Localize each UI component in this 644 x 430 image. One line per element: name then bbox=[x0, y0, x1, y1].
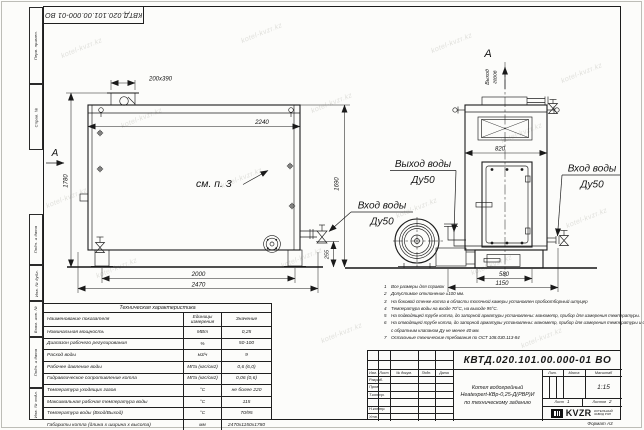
note-text: Остальные технические требования по ОСТ … bbox=[391, 334, 620, 341]
tech-characteristics-table: Техническая характеристика Наименование … bbox=[43, 303, 272, 420]
sheets-value: 2 bbox=[609, 399, 612, 404]
wall-fitting-icon bbox=[97, 130, 295, 209]
note-item: с обратным клапаном Ду не менее 40 мм. bbox=[384, 327, 620, 334]
tech-row: Температура воды (Вход/Выход)°С70/95 bbox=[44, 408, 271, 420]
product-name-cell: Котел водогрейный Heatexpert-КВр-0,25-Д(… bbox=[454, 370, 541, 420]
note-number: 4 bbox=[384, 305, 391, 312]
tech-cell-value: 9 bbox=[222, 350, 271, 361]
tech-header-unit: Единицы измерения bbox=[184, 313, 222, 326]
corner-lug-icon bbox=[453, 107, 559, 114]
tech-cell-value: 0,06 (0,6) bbox=[222, 374, 271, 385]
technical-notes: 1Все размеры для справок 2Допустимое отк… bbox=[384, 283, 620, 341]
note-number: 1 bbox=[384, 283, 391, 290]
view-a-arrow: А bbox=[46, 148, 64, 163]
water-in-text: Вход воды bbox=[358, 201, 407, 212]
sheet-value: 1 bbox=[567, 399, 570, 404]
note-text: Все размеры для справок bbox=[391, 283, 620, 290]
tech-row: Температура уходящих газов°Сне более 220 bbox=[44, 385, 271, 397]
note-text: с обратным клапаном Ду не менее 40 мм. bbox=[391, 327, 620, 334]
role-tkontr: Т.контр. bbox=[369, 392, 389, 397]
water-in-dn: Ду50 bbox=[579, 180, 604, 191]
tech-cell-value: не более 220 bbox=[222, 385, 271, 396]
scale-value-text: 1:15 bbox=[597, 384, 610, 391]
logo-bar bbox=[559, 411, 560, 416]
boiler-body-front bbox=[465, 105, 547, 250]
tech-cell-name: Температура воды (Вход/Выход) bbox=[44, 408, 184, 419]
note-item: 6На отводящей трубе котла, до запорной а… bbox=[384, 319, 620, 326]
flue-outlet-callout: Выход газов bbox=[485, 67, 505, 89]
tech-row: Рабочее давление водыМПа (кгс/см2)0,6 (6… bbox=[44, 362, 271, 374]
col-label: Дата bbox=[439, 371, 448, 375]
mass-label: Масса bbox=[563, 369, 585, 376]
cell-label: Масштаб bbox=[595, 371, 612, 375]
boiler-front-view: А Выход газов bbox=[329, 48, 620, 292]
divider-line bbox=[368, 360, 453, 361]
col-list: Лист bbox=[378, 369, 390, 376]
col-label: Изм. bbox=[369, 371, 377, 375]
tech-cell-unit: % bbox=[184, 339, 222, 350]
divider-line bbox=[556, 376, 557, 398]
tech-cell-name: Расход воды bbox=[44, 350, 184, 361]
dim-front-base: 580 bbox=[499, 272, 510, 278]
side-stub bbox=[80, 194, 88, 201]
col-izm: Изм. bbox=[368, 369, 378, 376]
note-number bbox=[384, 327, 391, 334]
flue-out-word2: газов bbox=[493, 70, 499, 84]
tech-header-value: Значение bbox=[222, 313, 271, 326]
dim-length-total: 2470 bbox=[191, 282, 206, 289]
scale-value: 1:15 bbox=[585, 376, 622, 398]
note-number: 6 bbox=[384, 319, 391, 326]
col-label: № докум. bbox=[396, 371, 412, 375]
tech-cell-name: Рабочее давление воды bbox=[44, 362, 184, 373]
logo-bar bbox=[554, 411, 555, 416]
tech-cell-value: 50-100 bbox=[222, 339, 271, 350]
tech-cell-unit: °С bbox=[184, 385, 222, 396]
tech-header-name: Наименование показателя bbox=[44, 313, 184, 326]
cell-label: Масса bbox=[569, 371, 580, 375]
water-in-dn: Ду50 bbox=[369, 217, 394, 228]
logo-subtext: КОТЕЛЬНЫЙ ЗАВОД РЭП bbox=[594, 410, 613, 417]
note-text: Допустимое отклонение ±100 мм. bbox=[391, 290, 620, 297]
divider-line bbox=[390, 351, 391, 421]
tech-cell-value: 2470х1150х1780 bbox=[222, 420, 271, 430]
tech-cell-unit: МВт bbox=[184, 327, 222, 338]
note-text: На подводящей трубе котла, до запорной а… bbox=[391, 312, 640, 319]
sheet-label: Лист bbox=[554, 400, 564, 404]
manufacturer-logo-cell: KVZR КОТЕЛЬНЫЙ ЗАВОД РЭП bbox=[542, 406, 622, 422]
water-out-callout: Выход воды Ду50 bbox=[390, 159, 456, 232]
divider-line bbox=[435, 351, 436, 421]
note-item: 2Допустимое отклонение ±100 мм. bbox=[384, 290, 620, 297]
tech-row: Номинальная мощностьМВт0,25 bbox=[44, 327, 271, 339]
col-label: Подп. bbox=[422, 371, 432, 375]
logo-sub-line: ЗАВОД РЭП bbox=[594, 413, 613, 416]
product-name-line: Котел водогрейный bbox=[472, 385, 523, 391]
inlet-pipe-valve-icon bbox=[300, 225, 327, 243]
tech-cell-unit: °С bbox=[184, 397, 222, 408]
sheet-cell: Лист 1 bbox=[542, 398, 582, 406]
col-dokum: № докум. bbox=[390, 369, 418, 376]
product-name-line: Heatexpert-КВр-0,25-Д(РВР)И bbox=[460, 392, 534, 398]
divider-line bbox=[368, 398, 453, 399]
water-out-text: Выход воды bbox=[395, 159, 452, 170]
tech-cell-value: 0,6 (6,0) bbox=[222, 362, 271, 373]
note-item: 5На подводящей трубе котла, до запорной … bbox=[384, 312, 620, 319]
view-a-letter: А bbox=[51, 148, 59, 159]
scale-label: Масштаб bbox=[585, 369, 622, 376]
lifting-lug-icon bbox=[99, 108, 294, 117]
view-a-label: А bbox=[483, 48, 491, 60]
dim-flue-stub: 200х390 bbox=[148, 77, 173, 83]
flue-out-word1: Выход bbox=[485, 69, 491, 85]
tech-cell-value: 0,25 bbox=[222, 327, 271, 338]
designation-cell: КВТД.020.101.00.000-01 ВО bbox=[453, 351, 622, 369]
col-data: Дата bbox=[435, 369, 453, 376]
flue-gas-stub bbox=[107, 93, 139, 105]
dim-base-offset: 255 bbox=[325, 249, 331, 260]
note-item: 1Все размеры для справок bbox=[384, 283, 620, 290]
tech-cell-name: Гидравлическое сопротивление котла bbox=[44, 374, 184, 385]
role-utv: Утв. bbox=[369, 414, 389, 419]
tech-row: Расход водым3/ч9 bbox=[44, 350, 271, 362]
note-text: На боковой стенке котла в области топочн… bbox=[391, 298, 620, 305]
furnace-door bbox=[476, 162, 532, 247]
role-nkontr: Н.контр. bbox=[369, 406, 389, 411]
note-number: 2 bbox=[384, 290, 391, 297]
tech-row: Габариты котла (длина х ширина х высота)… bbox=[44, 420, 271, 430]
blower-fan bbox=[393, 217, 475, 268]
tech-row: Диапазон рабочего регулирования%50-100 bbox=[44, 339, 271, 351]
water-outlet-elbow bbox=[444, 224, 466, 246]
drawing-sheet: kotel-kvzr.kz kotel-kvzr.kz kotel-kvzr.k… bbox=[0, 0, 644, 430]
tech-row: Гидравлическое сопротивление котлаМПа (к… bbox=[44, 374, 271, 386]
col-label: Лист bbox=[379, 371, 388, 375]
divider-line bbox=[549, 376, 550, 398]
note-number: 7 bbox=[384, 334, 391, 341]
tech-table-header: Наименование показателя Единицы измерени… bbox=[44, 313, 271, 327]
tech-cell-value: 115 bbox=[222, 397, 271, 408]
product-name-line: по техническому заданию bbox=[464, 400, 531, 406]
tech-cell-name: Номинальная мощность bbox=[44, 327, 184, 338]
dim-legs-span: 2000 bbox=[191, 271, 206, 278]
tech-cell-unit: мм bbox=[184, 420, 222, 430]
note-number: 5 bbox=[384, 312, 391, 319]
tech-cell-unit: °С bbox=[184, 408, 222, 419]
tech-cell-name: Температура уходящих газов bbox=[44, 385, 184, 396]
designation-text: КВТД.020.101.00.000-01 ВО bbox=[464, 355, 612, 366]
boiler-base bbox=[475, 250, 543, 268]
flange-fitting-icon bbox=[264, 236, 281, 253]
cell-label: Лит. bbox=[548, 371, 557, 375]
note-number: 3 bbox=[384, 298, 391, 305]
water-in-text: Вход воды bbox=[568, 164, 617, 175]
boiler-side-view: 200х390 2240 1780 1690 255 2000 bbox=[46, 77, 350, 294]
see-item-text: см. п. 3 bbox=[196, 178, 232, 190]
col-podp: Подп. bbox=[418, 369, 435, 376]
format-label: Формат А3 bbox=[565, 421, 635, 426]
tech-cell-unit: МПа (кгс/см2) bbox=[184, 374, 222, 385]
water-in-right-callout: Вход воды Ду50 bbox=[558, 164, 621, 237]
note-item: 3На боковой стенке котла в области топоч… bbox=[384, 298, 620, 305]
tech-cell-name: Габариты котла (длина х ширина х высота) bbox=[44, 420, 184, 430]
tech-table-title: Техническая характеристика bbox=[44, 304, 271, 313]
dim-height-body: 1690 bbox=[335, 177, 341, 191]
note-item: 4Температура воды на входе 70°С, на выхо… bbox=[384, 305, 620, 312]
role-prov: Пров. bbox=[369, 384, 389, 389]
tech-cell-unit: м3/ч bbox=[184, 350, 222, 361]
dim-height-total: 1780 bbox=[64, 174, 70, 188]
logo-text: KVZR bbox=[566, 408, 592, 418]
note-item: 7Остальные технические требования по ОСТ… bbox=[384, 334, 620, 341]
tech-cell-value: 70/95 bbox=[222, 408, 271, 419]
sheets-cell: Листов 2 bbox=[582, 398, 622, 406]
note-text: На отводящей трубе котла, до запорной ар… bbox=[391, 319, 644, 326]
door-handle bbox=[476, 203, 492, 208]
kvzr-logo-icon bbox=[551, 409, 563, 418]
water-out-dn: Ду50 bbox=[410, 175, 435, 186]
tech-cell-name: Максимальная рабочая температура воды bbox=[44, 397, 184, 408]
tech-cell-name: Диапазон рабочего регулирования bbox=[44, 339, 184, 350]
role-razrab: Разраб. bbox=[369, 377, 389, 382]
divider-line bbox=[418, 351, 419, 421]
see-item-callout: см. п. 3 bbox=[196, 171, 268, 191]
dim-front-width: 820 bbox=[495, 147, 506, 153]
sheets-label: Листов bbox=[593, 400, 606, 404]
tech-row: Максимальная рабочая температура воды°С1… bbox=[44, 397, 271, 409]
tech-cell-unit: МПа (кгс/см2) bbox=[184, 362, 222, 373]
note-text: Температура воды на входе 70°С, на выход… bbox=[391, 305, 620, 312]
title-block: КВТД.020.101.00.000-01 ВО Изм. Лист № до… bbox=[367, 350, 621, 420]
dim-top-width: 2240 bbox=[254, 119, 269, 126]
lit-label: Лит. bbox=[542, 369, 563, 376]
logo-bar bbox=[557, 411, 558, 416]
